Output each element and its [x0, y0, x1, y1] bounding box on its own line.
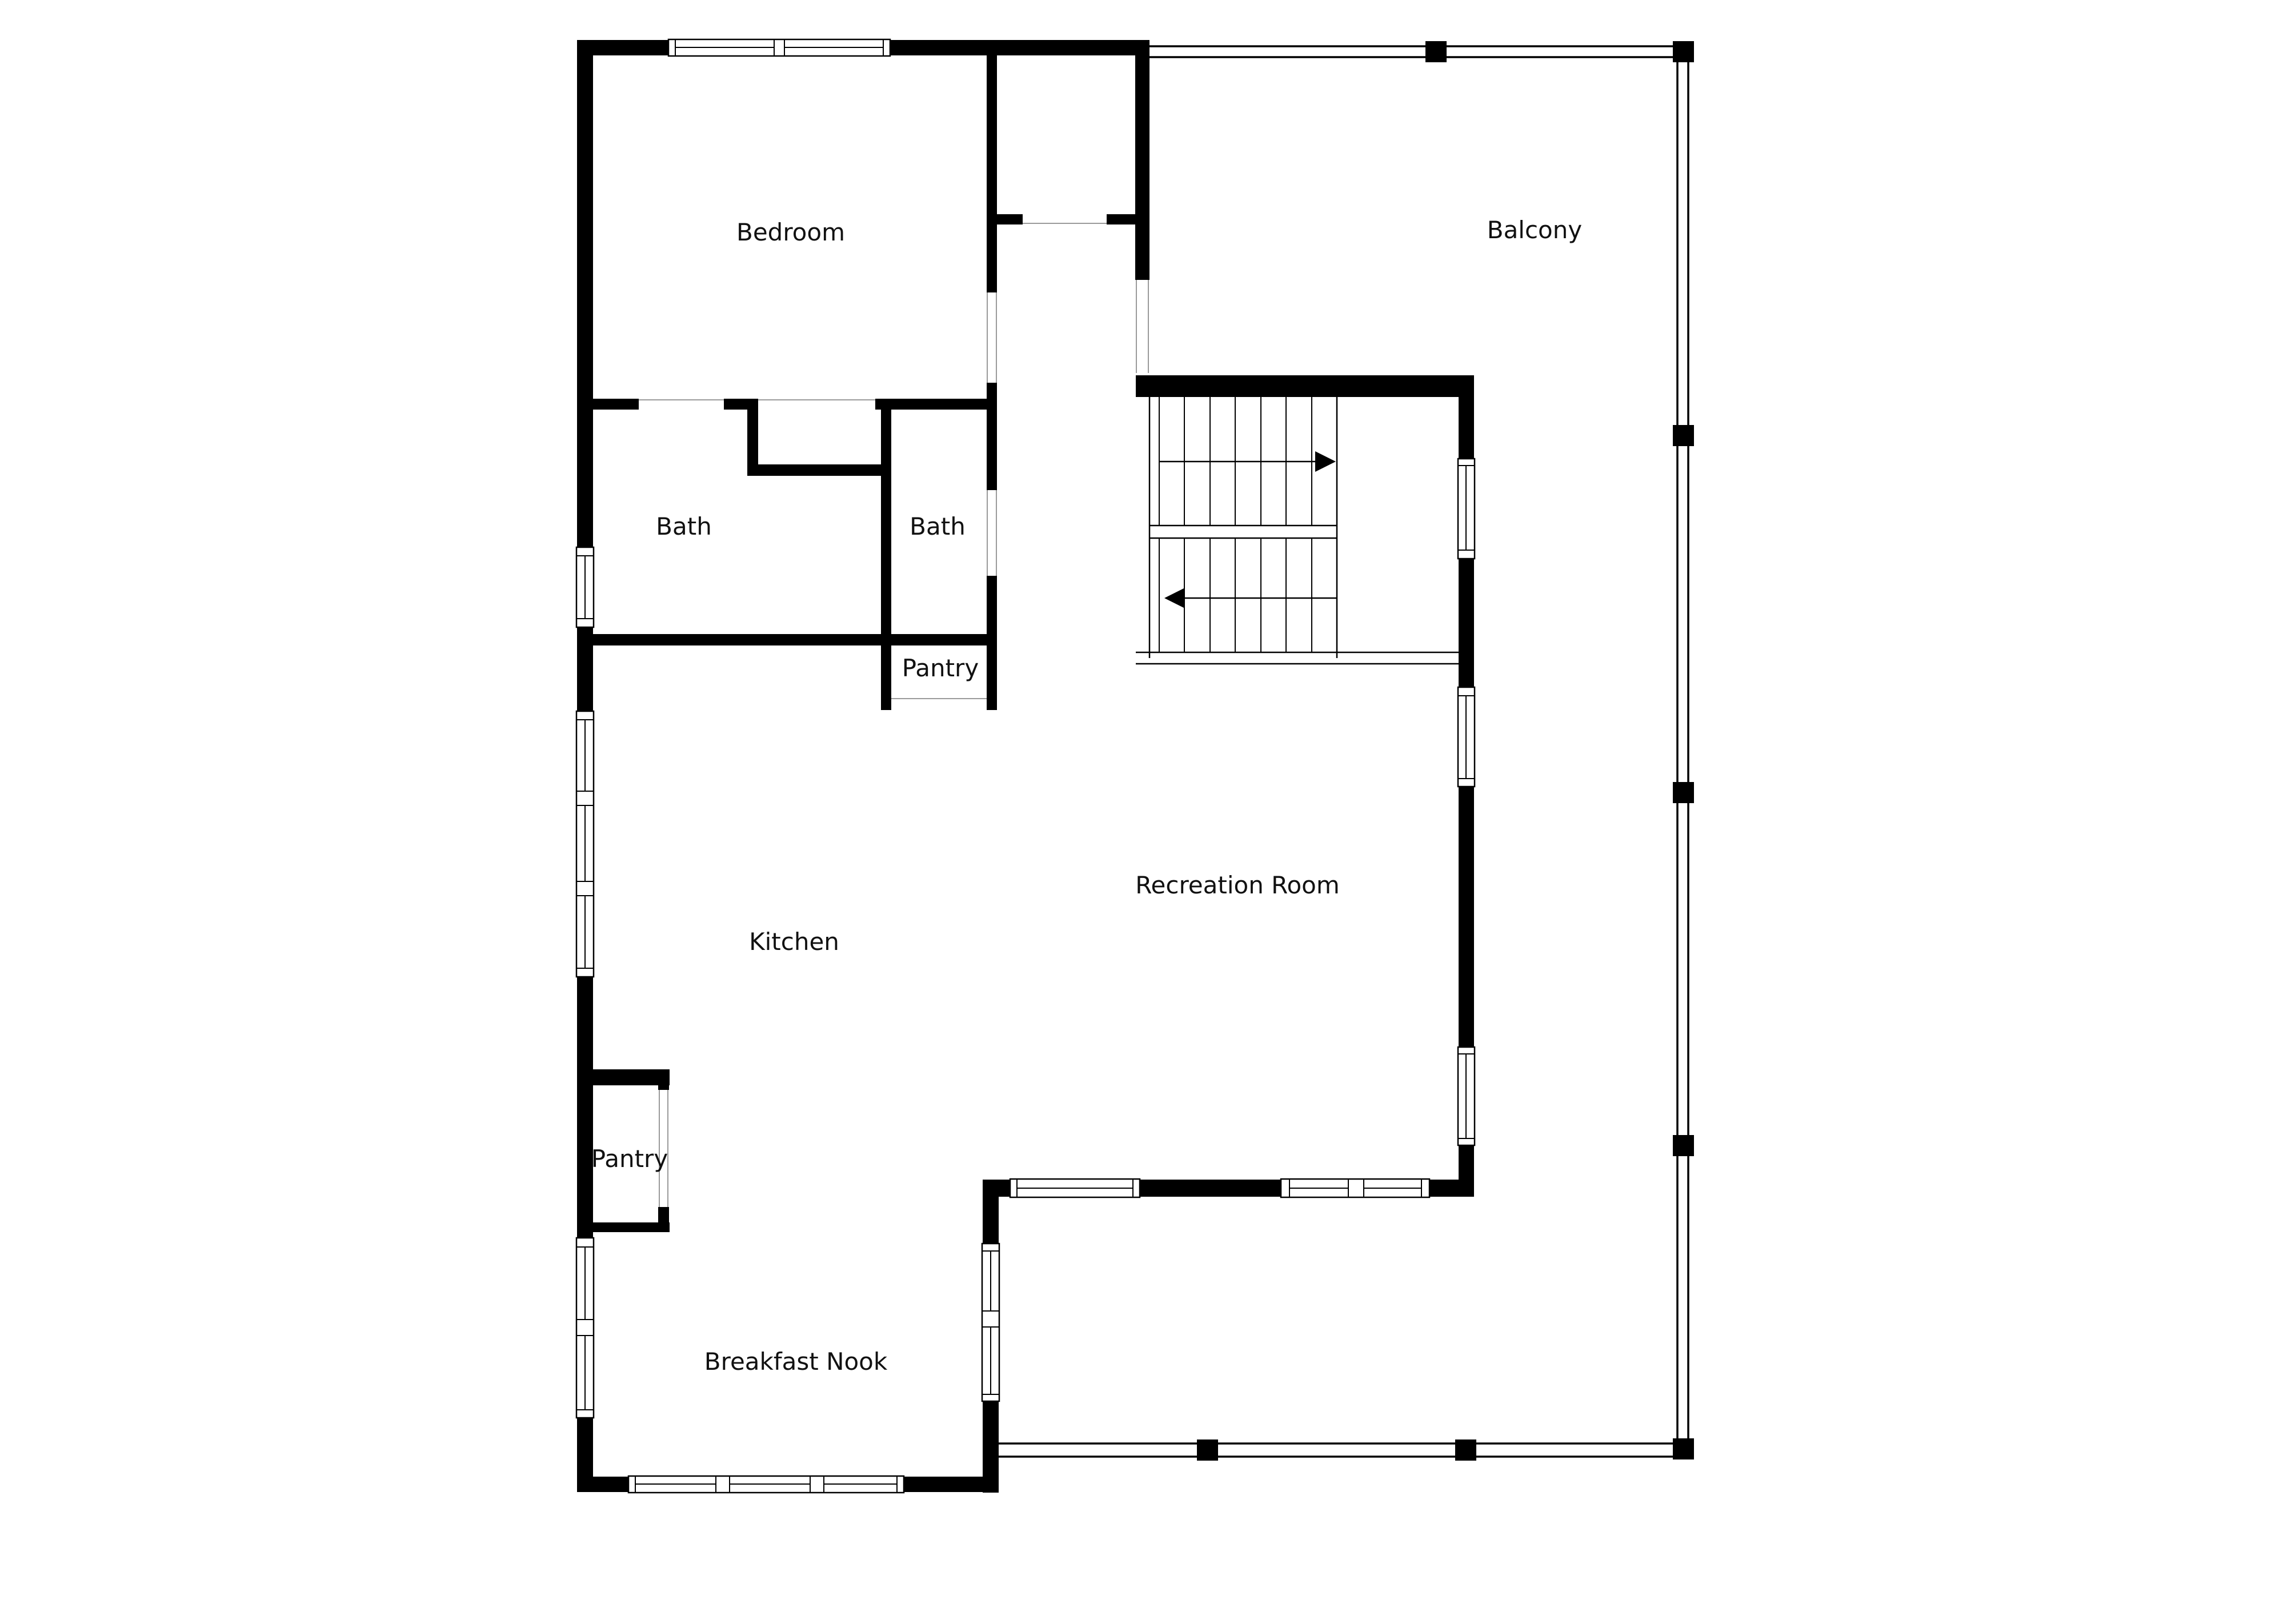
pantry-upper-right-wall [987, 645, 997, 710]
room-label-pantry-lower: Pantry [591, 1145, 668, 1173]
recreation-right-window-2 [1458, 687, 1475, 787]
nook-left-window-band [576, 1238, 594, 1418]
recreation-bottom-window-1 [1010, 1179, 1140, 1197]
stair-landing-edge [1149, 526, 1337, 538]
railings [998, 46, 1691, 1458]
post-top-right-corner [1673, 41, 1694, 62]
room-label-bath-right: Bath [910, 512, 966, 540]
room-label-balcony: Balcony [1487, 216, 1582, 244]
staircase [1136, 397, 1459, 664]
nook-bottom-window-band [628, 1476, 904, 1493]
room-label-recreation-room: Recreation Room [1135, 871, 1340, 899]
room-label-breakfast-nook: Breakfast Nook [704, 1348, 888, 1376]
post-bottom-right-corner [1673, 1438, 1694, 1459]
room-label-bedroom: Bedroom [736, 218, 845, 246]
bath-divider-wall [881, 410, 891, 645]
bedroom-niche-opening [758, 398, 875, 410]
railing-posts [1197, 41, 1694, 1461]
post-top-middle [1425, 41, 1447, 62]
post-porch-2 [1455, 1439, 1476, 1461]
stair-bottom-edge [1136, 652, 1459, 664]
recreation-right-window-1 [1458, 459, 1475, 559]
post-porch-1 [1197, 1439, 1218, 1461]
recreation-right-window-3 [1458, 1047, 1475, 1145]
closet-door-opening [1023, 214, 1107, 225]
balcony-door-opening [1135, 280, 1150, 373]
bedroom-top-window [668, 39, 890, 56]
niche-horizontal-wall [747, 464, 891, 476]
bath-window [576, 547, 594, 627]
post-right-2 [1673, 782, 1694, 803]
bedroom-door-opening [986, 292, 998, 383]
windows [576, 39, 1475, 1493]
porch-railing [998, 1443, 1691, 1457]
floor-plan-canvas: Bedroom Balcony Bath Bath Pantry Kitchen… [0, 0, 2279, 1624]
pantry-upper-left-wall [881, 645, 891, 710]
room-label-kitchen: Kitchen [749, 928, 839, 956]
pantry-lower-bottom-wall [593, 1222, 670, 1232]
post-right-1 [1673, 425, 1694, 446]
kitchen-window-band [576, 711, 594, 977]
bath-right-door-opening [986, 490, 998, 576]
balcony-right-railing [1677, 46, 1688, 1458]
walls [577, 40, 1474, 1493]
nook-right-window-band [982, 1244, 999, 1401]
bath-left-door-opening [639, 398, 724, 410]
stair-arrow-left-icon [1164, 588, 1337, 608]
room-label-pantry-upper: Pantry [902, 654, 979, 682]
post-right-3 [1673, 1135, 1694, 1156]
stair-arrow-right-icon [1159, 451, 1336, 472]
pantry-lower-top-wall [593, 1069, 670, 1085]
stair-top-wall [1136, 375, 1474, 397]
recreation-bottom-window-2 [1281, 1179, 1429, 1197]
balcony-top-railing [1149, 46, 1688, 57]
door-openings [639, 214, 1150, 1207]
room-label-bath-left: Bath [656, 512, 712, 540]
baths-bottom-wall [577, 634, 997, 645]
